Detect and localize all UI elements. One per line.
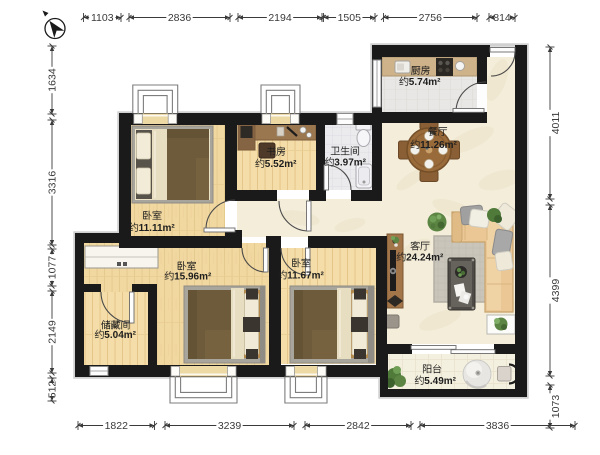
svg-text:814: 814 [493, 12, 511, 24]
svg-text:4399: 4399 [550, 279, 562, 303]
svg-text:24.24m²: 24.24m² [406, 253, 444, 264]
svg-text:15.96m²: 15.96m² [174, 272, 212, 283]
svg-text:5.49m²: 5.49m² [424, 376, 456, 387]
svg-text:2756: 2756 [419, 12, 443, 24]
svg-text:1103: 1103 [91, 12, 114, 24]
svg-text:1634: 1634 [46, 68, 58, 92]
svg-text:1822: 1822 [105, 420, 129, 432]
svg-text:2149: 2149 [46, 320, 58, 344]
svg-text:3.97m²: 3.97m² [334, 158, 366, 169]
svg-text:5.52m²: 5.52m² [265, 159, 297, 170]
svg-text:1073: 1073 [550, 395, 562, 419]
svg-text:5.74m²: 5.74m² [409, 77, 441, 88]
svg-text:11.11m²: 11.11m² [139, 223, 176, 234]
svg-text:11.26m²: 11.26m² [420, 140, 457, 151]
svg-text:1505: 1505 [338, 12, 362, 24]
svg-text:2836: 2836 [168, 12, 192, 24]
svg-text:3836: 3836 [486, 420, 510, 432]
svg-text:1077: 1077 [46, 256, 58, 280]
svg-text:4011: 4011 [550, 112, 562, 135]
svg-text:5.04m²: 5.04m² [104, 330, 136, 341]
svg-text:3316: 3316 [46, 171, 58, 195]
svg-text:512: 512 [46, 381, 58, 399]
svg-text:2842: 2842 [346, 420, 370, 432]
svg-text:3239: 3239 [218, 420, 242, 432]
svg-text:11.67m²: 11.67m² [287, 271, 324, 282]
svg-text:2194: 2194 [268, 12, 292, 24]
